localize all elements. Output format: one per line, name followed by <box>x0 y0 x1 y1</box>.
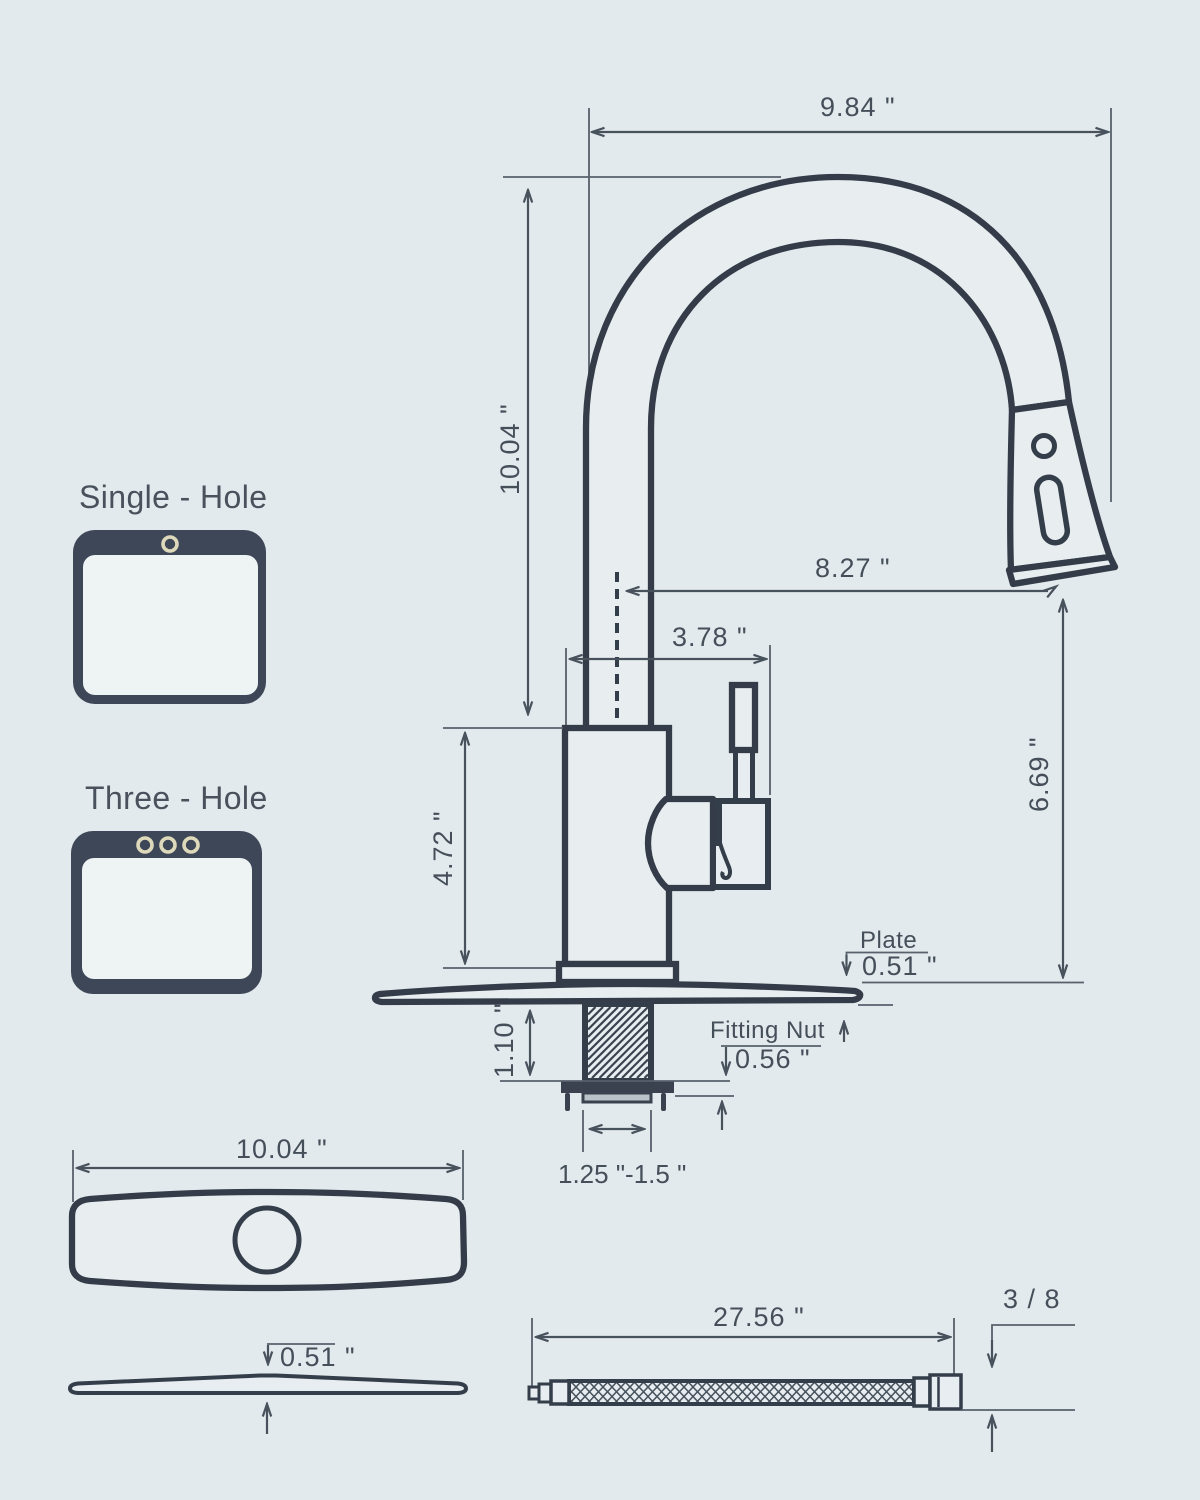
svg-text:0.51 ": 0.51 " <box>862 951 938 981</box>
svg-text:3 / 8: 3 / 8 <box>1003 1284 1061 1314</box>
svg-text:1.10 ": 1.10 " <box>489 1002 519 1078</box>
svg-text:0.51 ": 0.51 " <box>280 1342 356 1372</box>
svg-text:10.04 ": 10.04 " <box>495 403 525 495</box>
svg-text:27.56 ": 27.56 " <box>713 1302 805 1332</box>
svg-text:3.78 ": 3.78 " <box>672 622 748 652</box>
svg-text:Plate: Plate <box>860 927 917 954</box>
svg-text:Fitting Nut: Fitting Nut <box>710 1017 825 1044</box>
svg-text:Three - Hole: Three - Hole <box>85 780 268 816</box>
svg-text:9.84 ": 9.84 " <box>820 92 896 122</box>
svg-text:4.72 ": 4.72 " <box>428 810 458 886</box>
svg-text:10.04 ": 10.04 " <box>236 1134 328 1164</box>
svg-text:1.25 "-1.5 ": 1.25 "-1.5 " <box>558 1159 686 1189</box>
svg-text:0.56 ": 0.56 " <box>735 1044 811 1074</box>
svg-text:8.27 ": 8.27 " <box>815 553 891 583</box>
svg-text:6.69 ": 6.69 " <box>1024 736 1054 812</box>
svg-text:Single - Hole: Single - Hole <box>79 479 267 515</box>
